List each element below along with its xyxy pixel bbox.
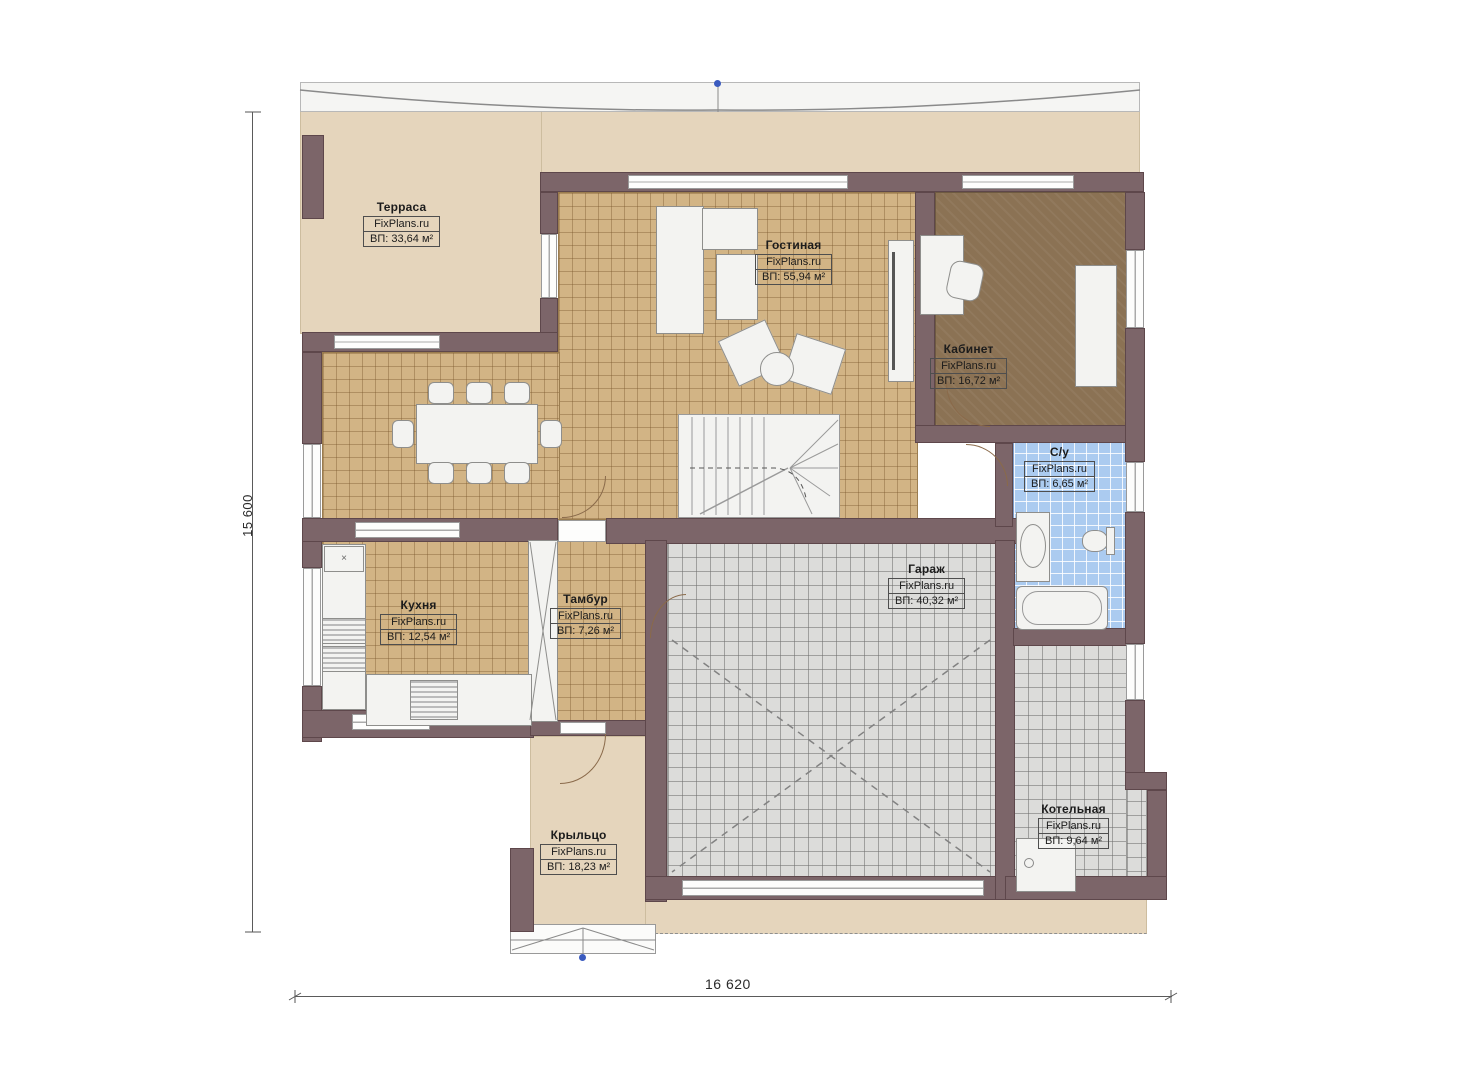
window-left-dining bbox=[303, 444, 321, 518]
room-name: Гостиная bbox=[755, 238, 832, 252]
boiler-dial bbox=[1024, 858, 1034, 868]
room-name: Котельная bbox=[1038, 802, 1109, 816]
porch-marker-dot bbox=[579, 954, 586, 961]
chair bbox=[540, 420, 562, 448]
room-info-box: FixPlans.ru ВП: 9,64 м² bbox=[1038, 818, 1109, 849]
room-site: FixPlans.ru bbox=[551, 609, 620, 624]
room-label-living: Гостиная FixPlans.ru ВП: 55,94 м² bbox=[755, 238, 832, 285]
wall-garage-right bbox=[995, 540, 1015, 900]
room-info-box: FixPlans.ru ВП: 7,26 м² bbox=[550, 608, 621, 639]
room-info-box: FixPlans.ru ВП: 6,65 м² bbox=[1024, 461, 1095, 492]
stairs bbox=[678, 414, 840, 518]
room-site: FixPlans.ru bbox=[1039, 819, 1108, 834]
room-site: FixPlans.ru bbox=[364, 217, 439, 232]
kitchen-oven bbox=[322, 618, 366, 644]
sink bbox=[1020, 524, 1046, 568]
room-label-terrace: Терраса FixPlans.ru ВП: 33,64 м² bbox=[363, 200, 440, 247]
garage-door-opening bbox=[682, 880, 984, 896]
room-name: Крыльцо bbox=[540, 828, 617, 842]
room-label-garage: Гараж FixPlans.ru ВП: 40,32 м² bbox=[888, 562, 965, 609]
chair bbox=[466, 462, 492, 484]
roof-marker-dot bbox=[714, 80, 721, 87]
room-info-box: FixPlans.ru ВП: 55,94 м² bbox=[755, 254, 832, 285]
room-name: Кабинет bbox=[930, 342, 1007, 356]
sofa-chaise bbox=[702, 208, 758, 250]
room-label-vestibule: Тамбур FixPlans.ru ВП: 7,26 м² bbox=[550, 592, 621, 639]
room-info-box: FixPlans.ru ВП: 33,64 м² bbox=[363, 216, 440, 247]
room-area: ВП: 6,65 м² bbox=[1025, 477, 1094, 491]
chair bbox=[504, 462, 530, 484]
room-area: ВП: 9,64 м² bbox=[1039, 834, 1108, 848]
floor-plan: × bbox=[0, 0, 1474, 1080]
wall-hall-top bbox=[606, 518, 1028, 544]
room-area: ВП: 55,94 м² bbox=[756, 270, 831, 284]
coffee-table bbox=[716, 254, 758, 320]
room-area: ВП: 33,64 м² bbox=[364, 232, 439, 246]
chair bbox=[504, 382, 530, 404]
wall-right-b bbox=[1125, 328, 1145, 462]
room-area: ВП: 16,72 м² bbox=[931, 374, 1006, 388]
side-table bbox=[760, 352, 794, 386]
opening-dining-kitchen bbox=[355, 522, 460, 538]
window-terrace-dining bbox=[334, 335, 440, 349]
room-area: ВП: 7,26 м² bbox=[551, 624, 620, 638]
dimension-line-bottom bbox=[295, 996, 1172, 997]
opening-hall-vestibule bbox=[558, 520, 606, 542]
room-name: Тамбур bbox=[550, 592, 621, 606]
room-info-box: FixPlans.ru ВП: 12,54 м² bbox=[380, 614, 457, 645]
room-area: ВП: 18,23 м² bbox=[541, 860, 616, 874]
dimension-left-label: 15 600 bbox=[240, 494, 255, 537]
room-info-box: FixPlans.ru ВП: 16,72 м² bbox=[930, 358, 1007, 389]
wall-step-out bbox=[1125, 772, 1167, 790]
room-name: Терраса bbox=[363, 200, 440, 214]
room-site: FixPlans.ru bbox=[756, 255, 831, 270]
dining-table bbox=[416, 404, 538, 464]
room-area: ВП: 12,54 м² bbox=[381, 630, 456, 644]
chair bbox=[392, 420, 414, 448]
driveway-apron bbox=[645, 896, 1147, 934]
wall-right-d bbox=[1125, 700, 1145, 774]
wall-bath-boiler bbox=[1013, 628, 1127, 646]
room-label-kitchen: Кухня FixPlans.ru ВП: 12,54 м² bbox=[380, 598, 457, 645]
bathtub-inner bbox=[1022, 591, 1102, 625]
window-right-boiler bbox=[1126, 644, 1144, 700]
chair bbox=[428, 462, 454, 484]
room-area: ВП: 40,32 м² bbox=[889, 594, 964, 608]
dimension-bottom-label: 16 620 bbox=[705, 976, 751, 992]
wall-porch-pillar bbox=[510, 848, 534, 932]
chair bbox=[466, 382, 492, 404]
room-name: Кухня bbox=[380, 598, 457, 612]
chair bbox=[428, 382, 454, 404]
window-living-top bbox=[628, 175, 848, 189]
room-site: FixPlans.ru bbox=[541, 845, 616, 860]
wall-garage-left bbox=[645, 540, 667, 902]
toilet-bowl bbox=[1082, 530, 1108, 552]
roof-overhang bbox=[300, 82, 1140, 112]
room-name: Гараж bbox=[888, 562, 965, 576]
toilet-tank bbox=[1106, 527, 1115, 555]
kitchen-sink-stove bbox=[410, 680, 458, 720]
room-site: FixPlans.ru bbox=[931, 359, 1006, 374]
window-left-kitchen bbox=[303, 568, 321, 686]
room-label-porch: Крыльцо FixPlans.ru ВП: 18,23 м² bbox=[540, 828, 617, 875]
window-right-office bbox=[1126, 250, 1144, 328]
kitchen-appliance: × bbox=[324, 546, 364, 572]
kitchen-fridge bbox=[322, 646, 366, 672]
window-right-bathroom bbox=[1126, 462, 1144, 512]
room-label-bathroom: С/у FixPlans.ru ВП: 6,65 м² bbox=[1024, 445, 1095, 492]
sofa bbox=[656, 206, 704, 334]
tv-panel bbox=[892, 252, 895, 370]
room-site: FixPlans.ru bbox=[889, 579, 964, 594]
room-info-box: FixPlans.ru ВП: 18,23 м² bbox=[540, 844, 617, 875]
wall-right-a bbox=[1125, 192, 1145, 250]
window-terrace-living bbox=[541, 234, 557, 298]
wall-living-left-a bbox=[540, 192, 558, 234]
office-sofa bbox=[1075, 265, 1117, 387]
entrance-door-opening bbox=[560, 722, 606, 734]
window-office-top bbox=[962, 175, 1074, 189]
room-name: С/у bbox=[1024, 445, 1095, 459]
room-info-box: FixPlans.ru ВП: 40,32 м² bbox=[888, 578, 965, 609]
room-site: FixPlans.ru bbox=[1025, 462, 1094, 477]
wall-terrace-pillar bbox=[302, 135, 324, 219]
room-label-office: Кабинет FixPlans.ru ВП: 16,72 м² bbox=[930, 342, 1007, 389]
wall-right-c bbox=[1125, 512, 1145, 644]
wall-office-bottom bbox=[915, 425, 1127, 443]
room-label-boiler: Котельная FixPlans.ru ВП: 9,64 м² bbox=[1038, 802, 1109, 849]
wall-living-left-b bbox=[540, 298, 558, 334]
room-site: FixPlans.ru bbox=[381, 615, 456, 630]
wall-left-a bbox=[302, 352, 322, 444]
